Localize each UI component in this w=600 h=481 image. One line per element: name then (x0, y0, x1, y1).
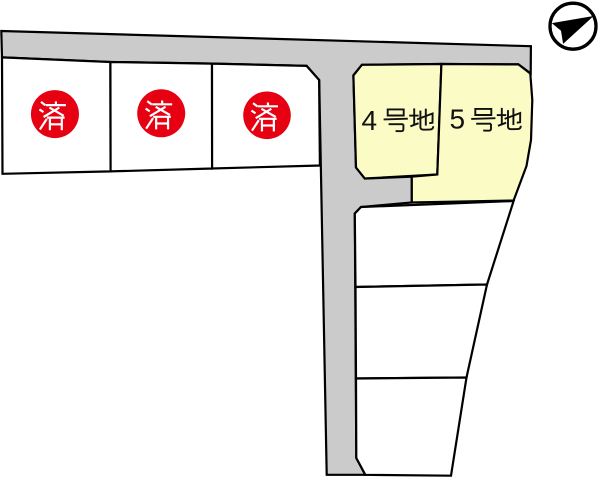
svg-text:4: 4 (362, 105, 378, 136)
svg-text:5: 5 (450, 103, 466, 134)
